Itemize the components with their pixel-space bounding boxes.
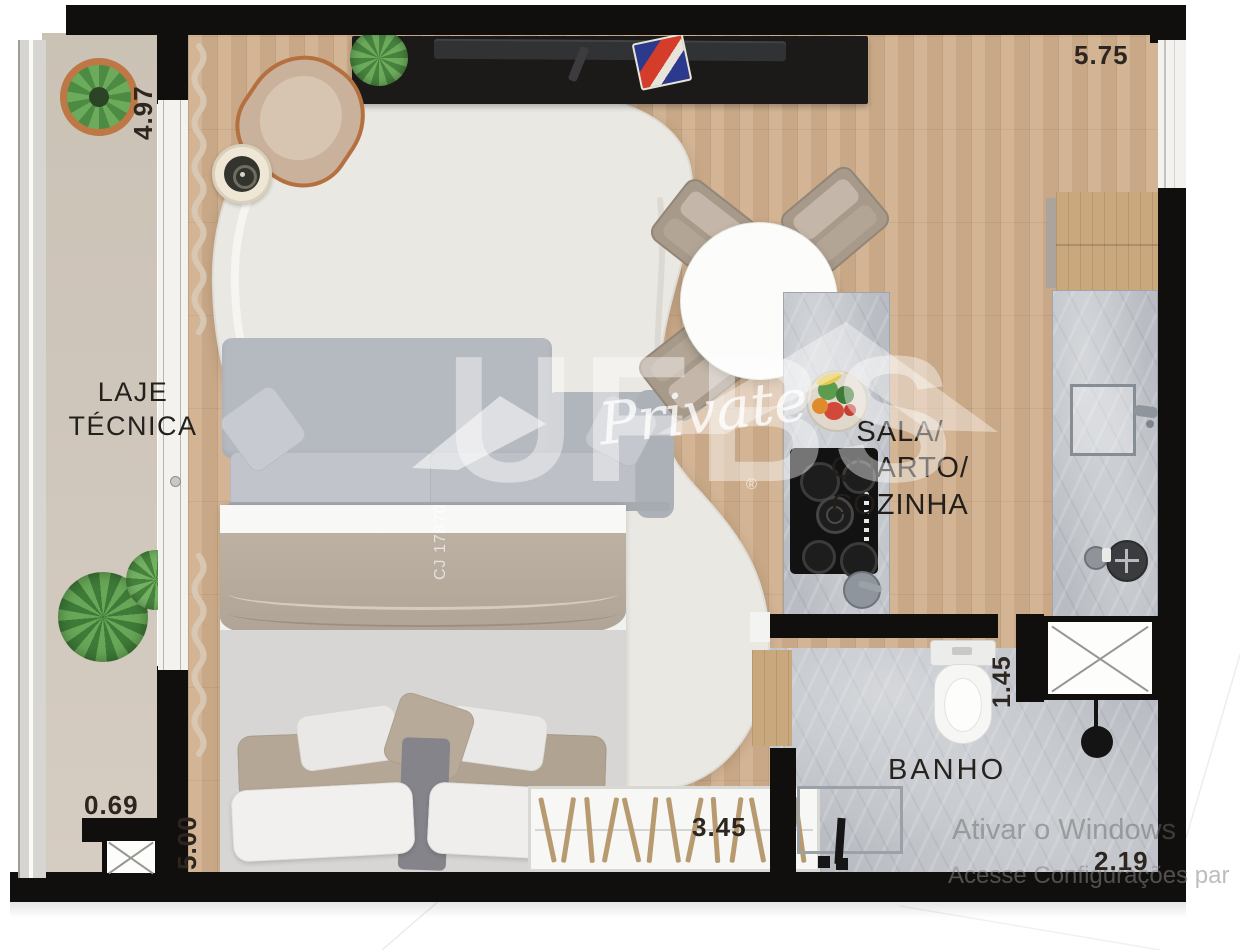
window-right — [1158, 40, 1186, 188]
fruit-orange — [812, 398, 828, 414]
kitchen-cabinet — [1056, 192, 1158, 292]
tv-icon — [434, 39, 786, 61]
wall-right — [1158, 186, 1186, 874]
counter-appliance-icon — [1106, 540, 1148, 582]
bed-blanket — [220, 533, 626, 633]
wall-bathroom-left — [770, 748, 796, 874]
window-frame-line — [1164, 40, 1166, 188]
toilet-flush-button — [952, 647, 972, 655]
shower-tray — [797, 786, 903, 854]
dimension-bathroom-width: 2.19 — [1094, 846, 1149, 877]
sala-line2: QUARTO/ — [798, 450, 1002, 486]
sala-line3: COZINHA — [798, 487, 1002, 523]
dimension-bathroom-length: 1.45 — [988, 632, 1017, 708]
appliance-cross — [1125, 549, 1128, 573]
dimension-balcony-door: 0.69 — [84, 790, 139, 821]
shower-fixture-icon — [818, 856, 830, 868]
kitchen-sink — [1070, 384, 1136, 456]
blanket-fold-line2 — [228, 599, 618, 627]
potted-plant-icon — [60, 58, 138, 136]
bathroom-door-leaf — [750, 612, 770, 642]
sofa-seat-right — [430, 452, 636, 508]
shaft-box-bathroom — [1042, 616, 1158, 700]
laje-line1: LAJE — [40, 376, 226, 410]
wall-bathroom-top — [770, 614, 998, 638]
toilet — [930, 640, 996, 746]
balcony-railing — [18, 40, 46, 878]
wall-partition-top — [157, 32, 188, 104]
bed-sheet-band — [220, 505, 626, 535]
wall-bottom — [10, 872, 1186, 902]
plant-center — [89, 87, 109, 107]
dimension-top-width: 5.75 — [1074, 40, 1129, 71]
railing-glass-line — [29, 40, 33, 878]
laje-line2: TÉCNICA — [40, 410, 226, 444]
dimension-bedroom-length: 5.00 — [172, 800, 203, 870]
side-table-ring — [233, 165, 257, 189]
wall-top — [66, 5, 1186, 35]
sink-faucet-knob — [1146, 420, 1154, 428]
shaft-box-balcony — [102, 836, 160, 878]
side-table — [212, 144, 272, 204]
side-table-dot — [240, 172, 245, 177]
window-frame-line — [1174, 40, 1175, 188]
fruit-dark-green — [836, 386, 854, 404]
sala-line1: SALA/ — [798, 414, 1002, 450]
room-label-laje-tecnica: LAJE TÉCNICA — [40, 376, 226, 444]
wall-bathroom-stub — [1016, 614, 1044, 702]
bed-pillow-white-left — [230, 781, 416, 862]
balcony-floor — [42, 33, 157, 878]
door-handle-icon — [170, 476, 181, 487]
room-label-sala-quarto-cozinha: SALA/ QUARTO/ COZINHA — [798, 414, 1002, 523]
bathroom-vanity — [752, 650, 792, 746]
plan-bottom-shadow — [10, 902, 1186, 918]
toilet-bowl-inner — [944, 678, 982, 732]
console-plant-icon — [350, 30, 408, 86]
counter-chip — [1102, 548, 1111, 562]
dimension-balcony-length: 4.97 — [128, 38, 159, 140]
counter-shadow — [1046, 198, 1056, 288]
burner-icon — [802, 540, 836, 574]
room-label-banho: BANHO — [888, 754, 1058, 787]
cabinet-divider — [1056, 244, 1158, 246]
shower-head-icon — [1081, 726, 1113, 758]
dimension-bottom-width: 3.45 — [692, 812, 747, 843]
shower-head-stem — [1094, 700, 1098, 728]
shower-fixture-icon — [836, 858, 848, 870]
floor-plan: LAJE TÉCNICA SALA/ QUARTO/ COZINHA BANHO… — [0, 0, 1240, 950]
